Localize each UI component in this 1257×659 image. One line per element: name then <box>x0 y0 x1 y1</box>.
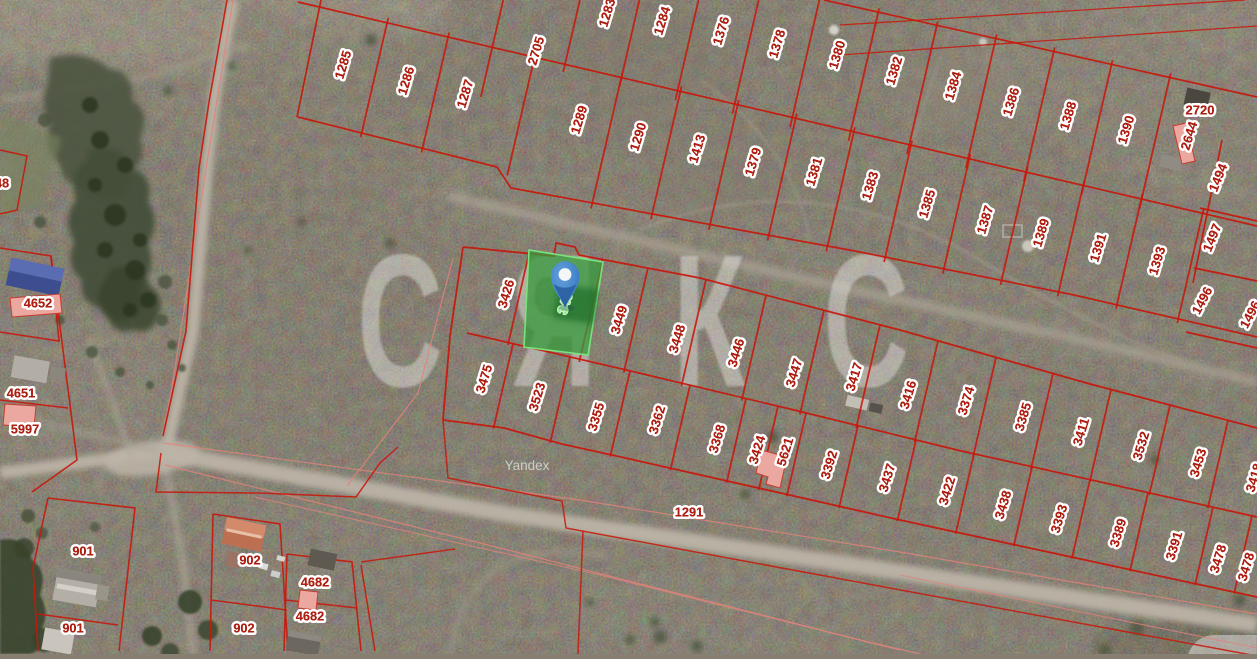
svg-text:901: 901 <box>72 543 93 558</box>
svg-text:1291: 1291 <box>675 504 703 519</box>
svg-text:4682: 4682 <box>301 574 329 589</box>
svg-text:48: 48 <box>0 175 9 190</box>
svg-text:4651: 4651 <box>7 385 35 400</box>
svg-text:902: 902 <box>233 620 254 635</box>
svg-text:902: 902 <box>239 552 260 567</box>
svg-text:5997: 5997 <box>11 421 39 436</box>
svg-text:4682: 4682 <box>296 608 324 623</box>
svg-text:4652: 4652 <box>24 295 52 310</box>
svg-text:2720: 2720 <box>1186 102 1215 117</box>
svg-text:901: 901 <box>62 620 83 635</box>
svg-text:С: С <box>357 216 443 427</box>
svg-text:Yandex: Yandex <box>505 458 550 473</box>
